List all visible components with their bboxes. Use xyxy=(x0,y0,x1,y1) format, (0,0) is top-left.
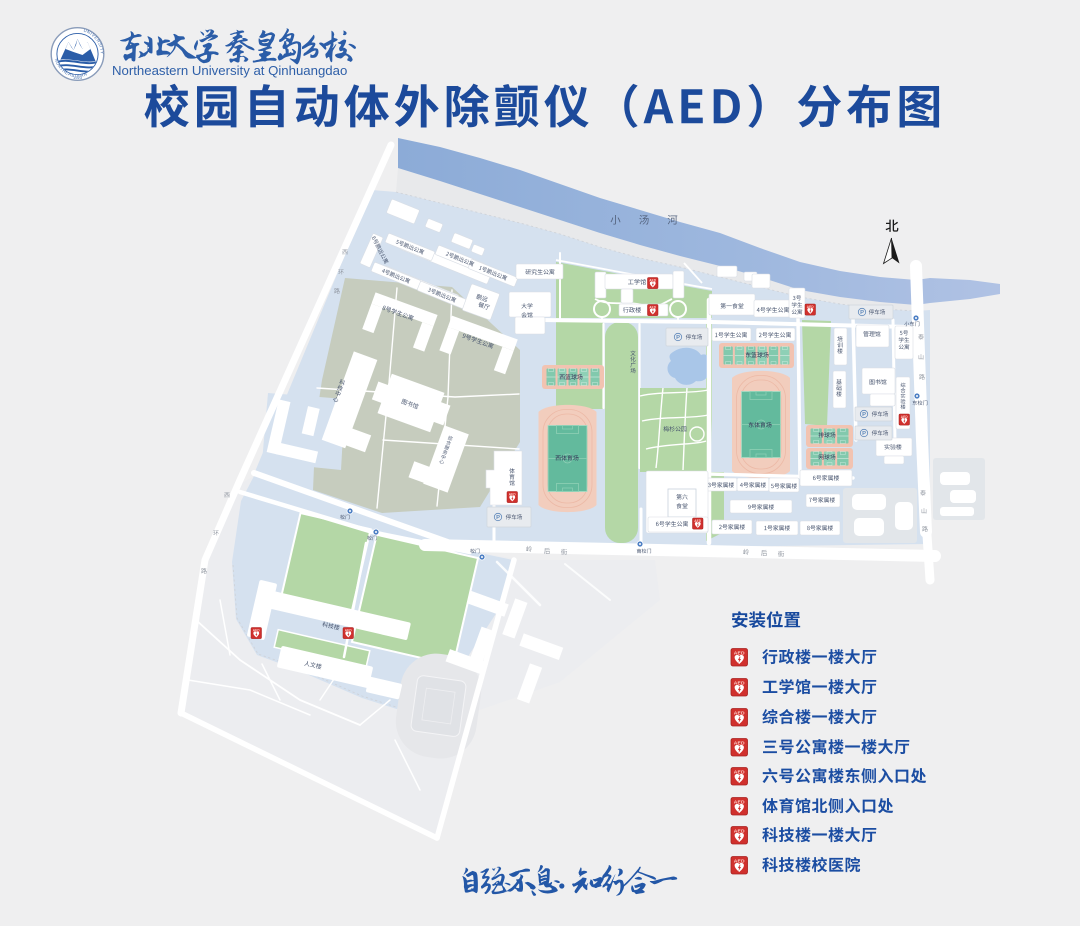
svg-text:Northeastern University at Qin: Northeastern University at Qinhuangdao xyxy=(112,63,347,78)
svg-text:1923: 1923 xyxy=(73,75,83,80)
